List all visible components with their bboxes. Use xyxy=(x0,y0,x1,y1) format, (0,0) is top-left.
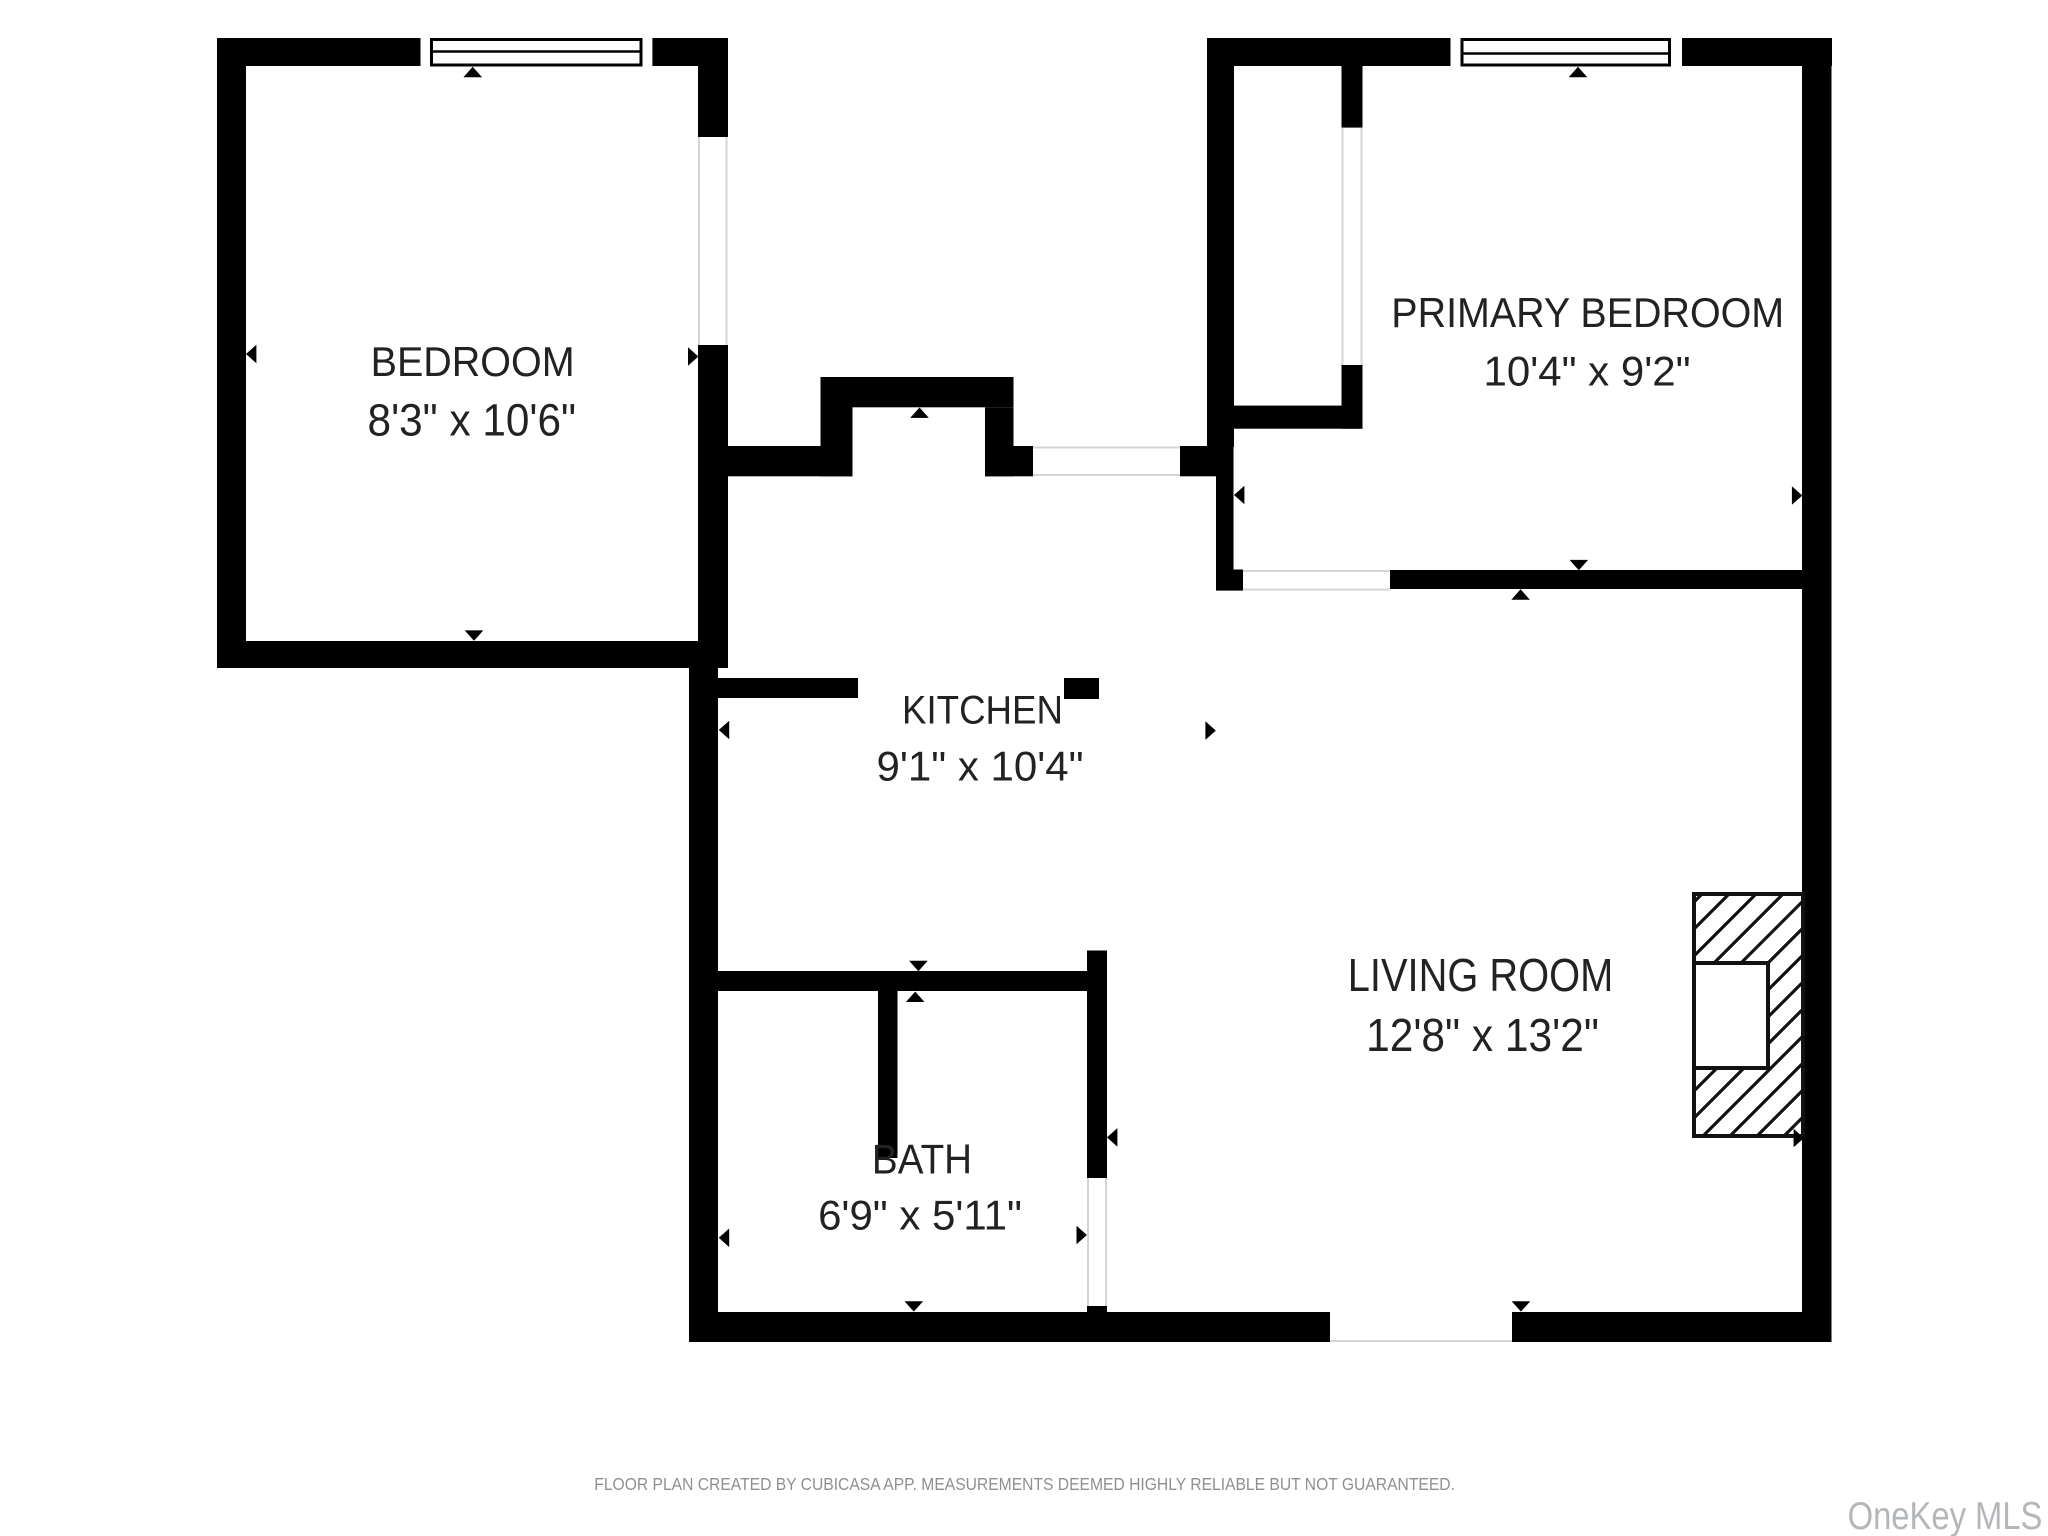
svg-text:PRIMARY BEDROOM: PRIMARY BEDROOM xyxy=(1391,289,1784,336)
svg-text:10'4" x 9'2": 10'4" x 9'2" xyxy=(1484,348,1691,395)
svg-text:9'1" x 10'4": 9'1" x 10'4" xyxy=(877,743,1084,790)
svg-text:BEDROOM: BEDROOM xyxy=(371,338,575,385)
svg-text:BATH: BATH xyxy=(872,1135,972,1183)
svg-text:8'3" x 10'6": 8'3" x 10'6" xyxy=(368,395,576,446)
svg-text:OneKey MLS: OneKey MLS xyxy=(1848,1493,2043,1536)
svg-text:KITCHEN: KITCHEN xyxy=(902,688,1063,733)
svg-text:12'8" x 13'2": 12'8" x 13'2" xyxy=(1366,1010,1599,1061)
svg-text:6'9" x 5'11": 6'9" x 5'11" xyxy=(818,1192,1022,1239)
svg-text:FLOOR PLAN CREATED BY CUBICASA: FLOOR PLAN CREATED BY CUBICASA APP. MEAS… xyxy=(594,1474,1455,1494)
svg-text:LIVING ROOM: LIVING ROOM xyxy=(1348,950,1614,1001)
